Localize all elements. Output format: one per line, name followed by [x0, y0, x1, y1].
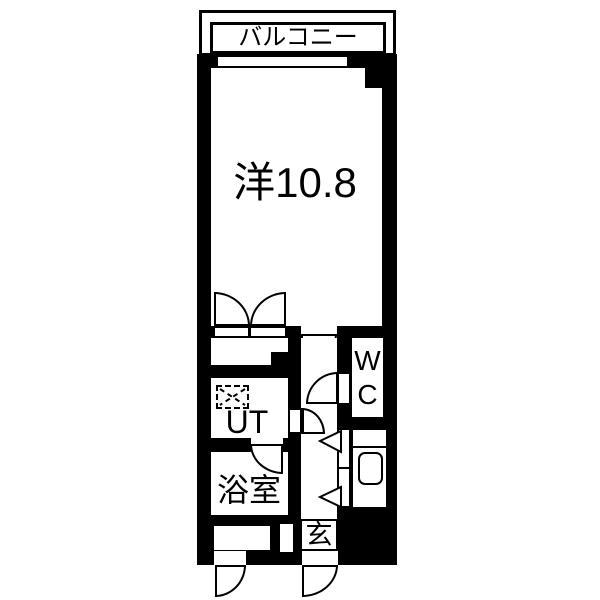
bifold-arrow-bottom-icon [320, 487, 341, 507]
floor-plan: バルコニー 洋10.8 UT 浴室 W C [0, 0, 600, 600]
plan-symbols-overlay [0, 0, 600, 600]
bifold-arrow-top-icon [320, 431, 341, 452]
washing-machine-cross-icon [220, 389, 245, 405]
